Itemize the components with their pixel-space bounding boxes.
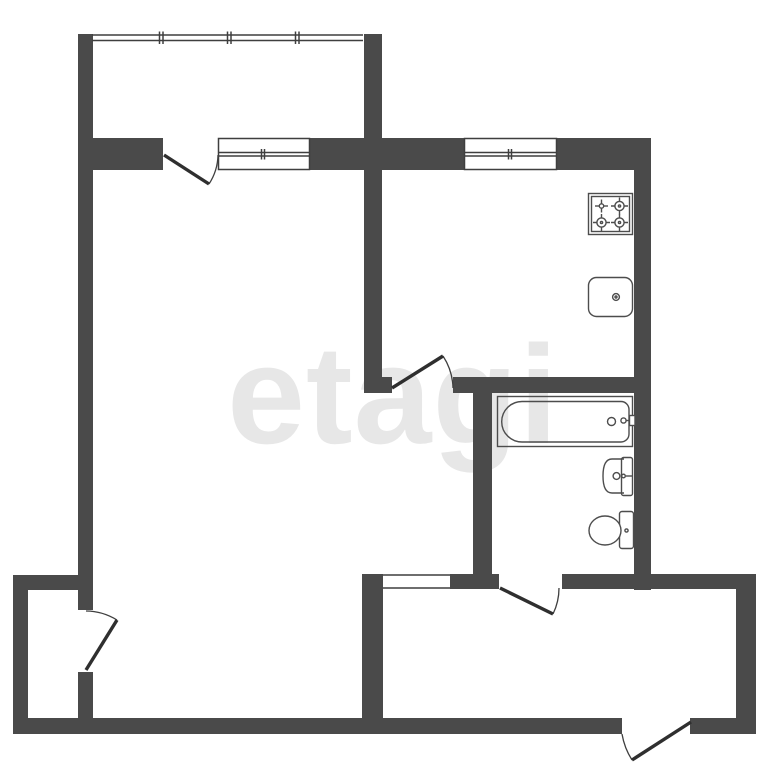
- wall-top-middle: [310, 138, 464, 170]
- wall-kitchen-bathroom: [453, 377, 634, 393]
- wall-living-hallway: [362, 574, 383, 734]
- wall-hallway-top-right: [562, 574, 755, 589]
- wall-outer-left-upper: [78, 34, 93, 610]
- wall-bottom: [13, 718, 622, 734]
- kitchen-window-icon: [465, 139, 557, 170]
- wall-bathroom-left: [473, 393, 492, 575]
- wall-top-left: [78, 138, 163, 170]
- wall-outer-right-upper: [634, 138, 651, 590]
- floor-plan: etagi: [0, 0, 768, 768]
- floor-plan-canvas: etagi: [0, 0, 768, 768]
- wall-bottom-right-corner: [690, 718, 756, 734]
- wall-outer-right-lower: [736, 574, 756, 734]
- wall-storage-left: [13, 575, 28, 734]
- wall-storage-top: [13, 575, 93, 590]
- wall-hallway-top-left: [450, 574, 499, 589]
- wall-living-kitchen-divider: [364, 34, 382, 393]
- wall-divider-end-cap: [364, 377, 392, 393]
- watermark-logo: etagi: [227, 316, 559, 473]
- living-room-window-icon: [219, 139, 310, 170]
